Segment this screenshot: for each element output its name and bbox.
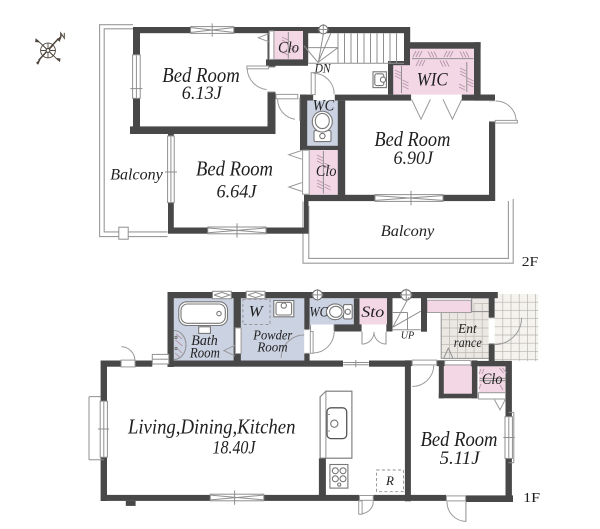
svg-text:Clo: Clo <box>278 39 299 56</box>
svg-text:18.40J: 18.40J <box>213 437 257 458</box>
svg-text:1F: 1F <box>523 491 540 506</box>
svg-text:WIC: WIC <box>417 70 448 91</box>
svg-text:6.64J: 6.64J <box>217 181 258 202</box>
svg-text:5.11J: 5.11J <box>440 448 482 469</box>
svg-text:W: W <box>249 303 265 320</box>
svg-text:Balcony: Balcony <box>381 223 435 240</box>
svg-text:Bed Room: Bed Room <box>196 156 273 180</box>
svg-text:R: R <box>385 473 394 488</box>
svg-text:WC: WC <box>313 98 335 115</box>
svg-text:Clo: Clo <box>482 371 503 388</box>
svg-text:Room: Room <box>256 341 287 356</box>
svg-text:Room: Room <box>189 345 220 361</box>
svg-text:Balcony: Balcony <box>110 167 163 184</box>
svg-text:rance: rance <box>454 335 482 350</box>
svg-text:Ent: Ent <box>457 321 478 336</box>
svg-text:Clo: Clo <box>316 163 337 180</box>
svg-text:UP: UP <box>401 330 415 342</box>
svg-text:6.13J: 6.13J <box>182 83 223 104</box>
svg-text:WC: WC <box>309 305 328 321</box>
svg-text:2F: 2F <box>522 255 539 270</box>
svg-text:Sto: Sto <box>361 304 384 321</box>
svg-text:6.90J: 6.90J <box>393 148 434 169</box>
svg-text:Living,Dining,Kitchen: Living,Dining,Kitchen <box>127 415 295 439</box>
